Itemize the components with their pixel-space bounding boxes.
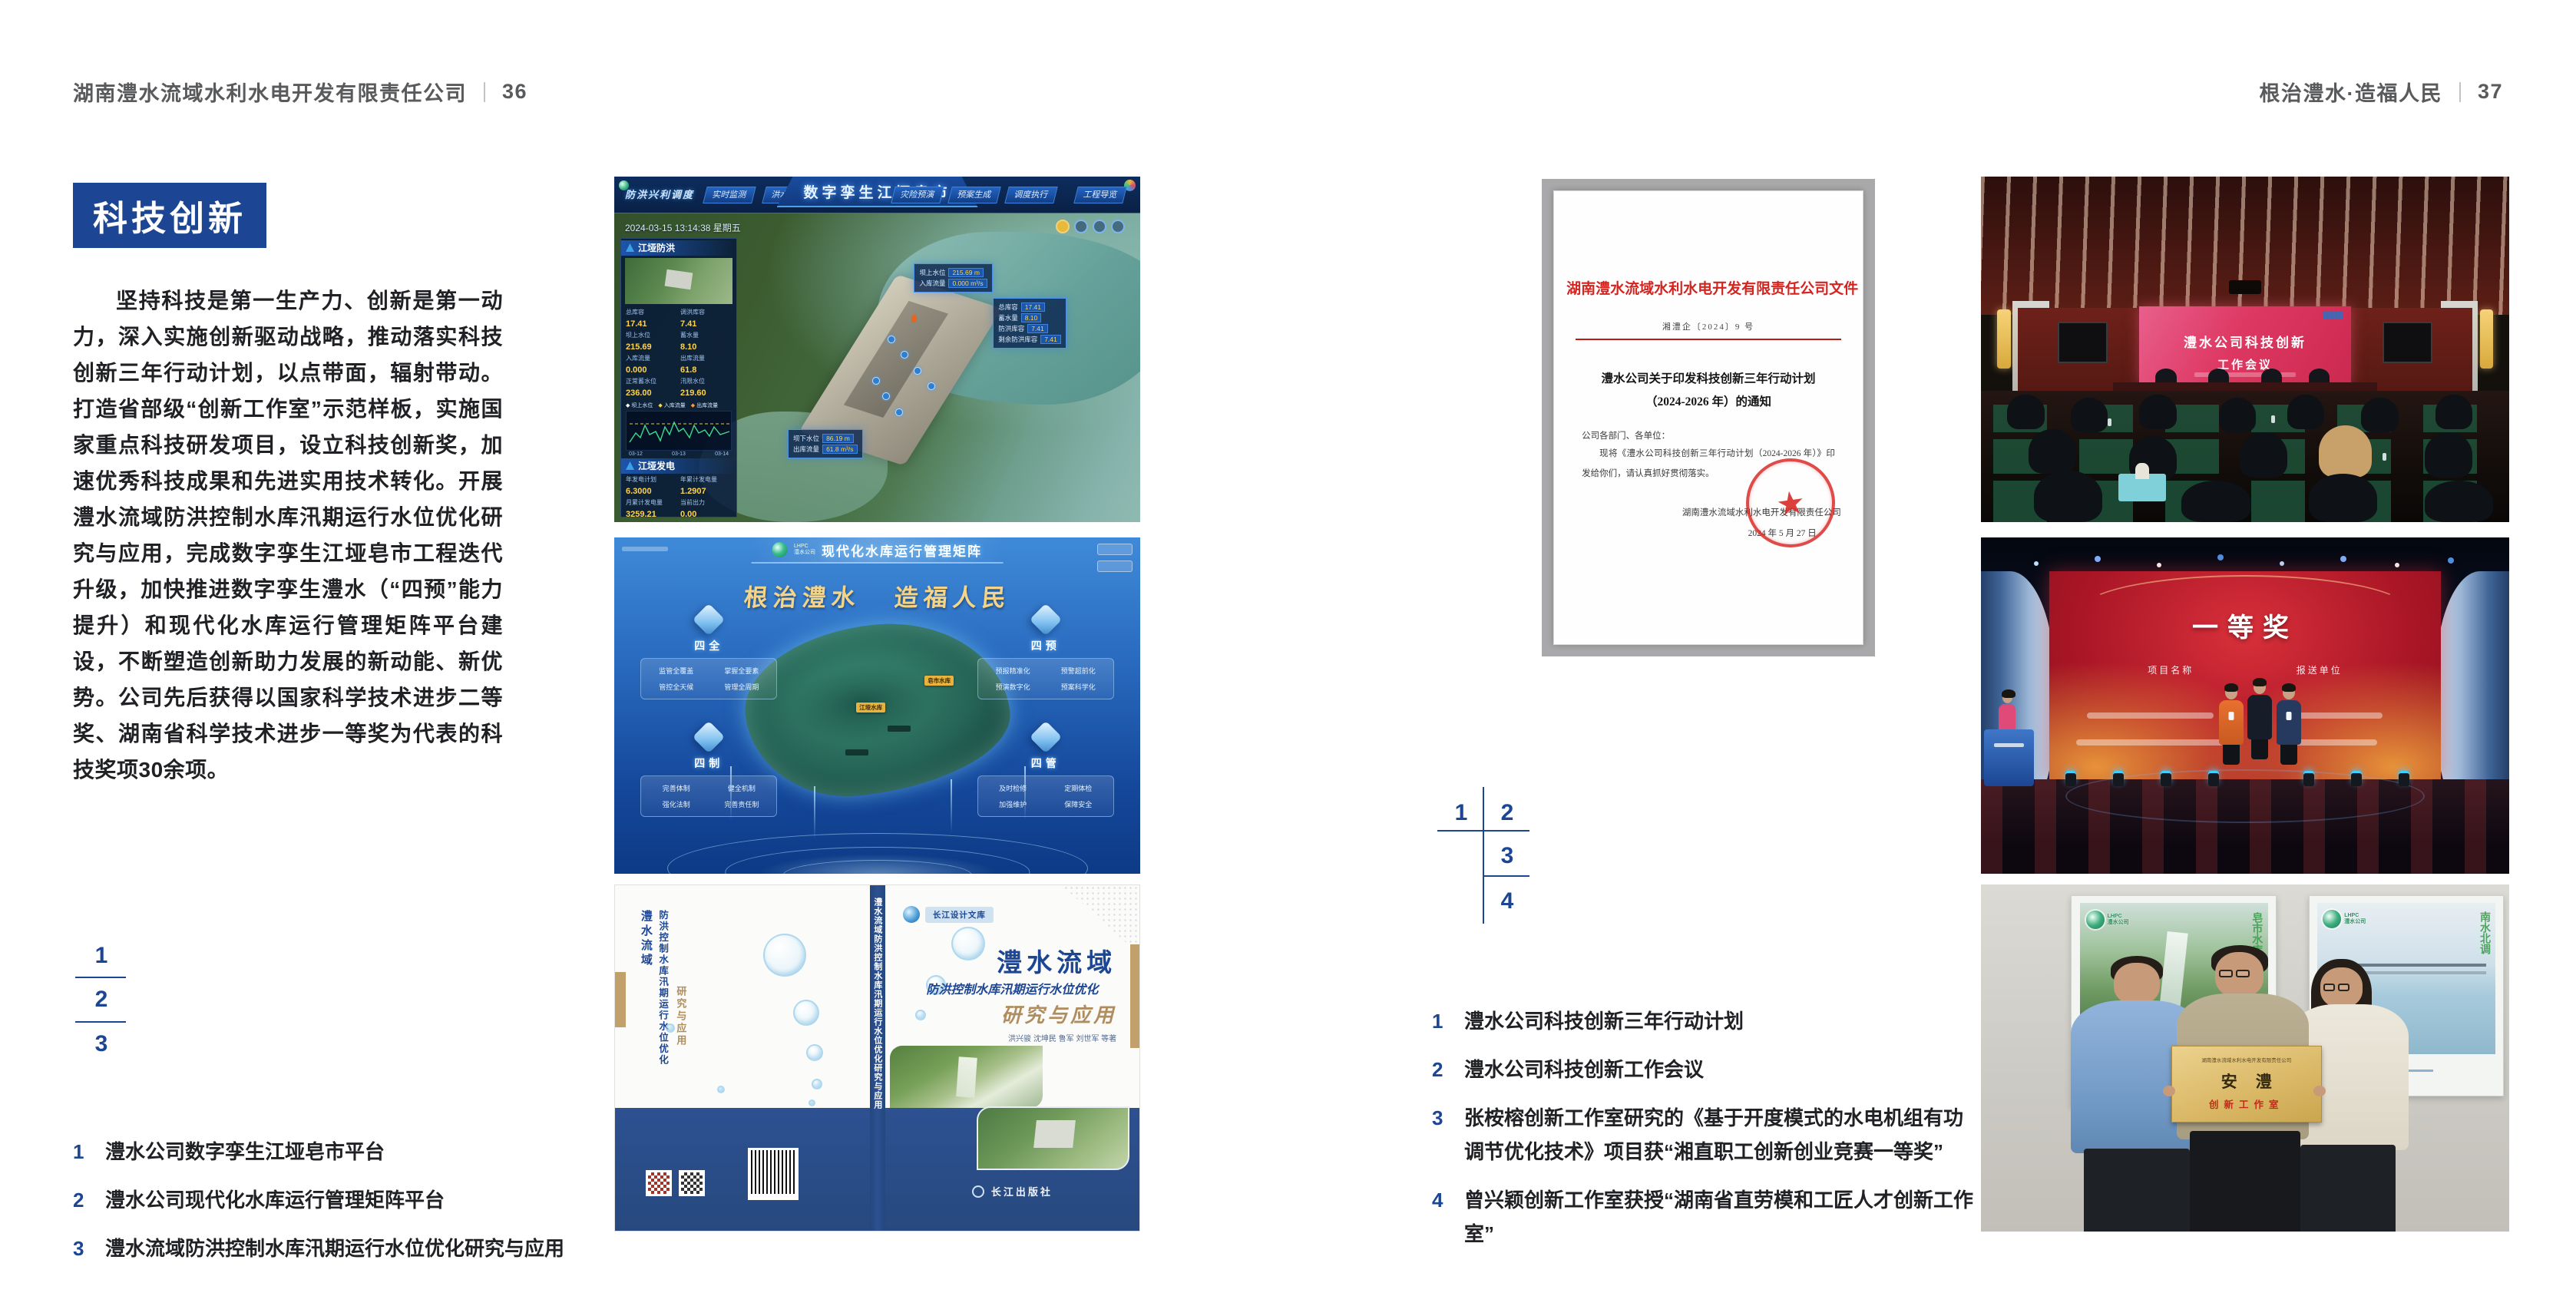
trophy-icon <box>2228 712 2234 720</box>
metric: 总库容17.41 <box>626 308 677 330</box>
metric: 当前出力0.00 <box>680 498 732 517</box>
caption-number: 2 <box>73 1183 90 1217</box>
barcode <box>748 1148 799 1200</box>
bubble-decoration <box>806 1044 823 1061</box>
back-tail-vertical: 研究与应用 <box>673 986 688 1047</box>
water-bottle <box>2108 418 2111 426</box>
metric: 出库流量61.8 <box>680 354 732 376</box>
tan-strip <box>1130 944 1139 1048</box>
plaque-subtitle: 创新工作室 <box>2172 1096 2321 1111</box>
blurred-text-bar <box>2293 739 2377 746</box>
audience-figure <box>2240 432 2287 478</box>
document-red-header: 湖南澧水流域水利水电开发有限责任公司文件 <box>1566 277 1850 298</box>
dashboard-datetime: 2024-03-15 13:14:38 星期五 <box>625 221 741 234</box>
caption-number: 1 <box>73 1135 90 1169</box>
dam-photo <box>890 1046 1043 1108</box>
trophy-icon <box>2287 712 2292 720</box>
metric: 蓄水量8.10 <box>680 331 732 353</box>
figure-award-ceremony: 一等奖 项目名称 报送单位 <box>1981 537 2509 874</box>
flood-panel-title: 江垭防洪 <box>621 240 736 256</box>
right-figure-index-3: 3 <box>1496 843 1518 869</box>
series-label: 长江设计文库 <box>925 907 994 923</box>
locate-icon <box>1093 220 1106 233</box>
magazine-spread: 湖南澧水流域水利水电开发有限责任公司 36 根治澧水·造福人民 37 科技创新 … <box>0 0 2576 1306</box>
floor-light <box>2208 771 2219 786</box>
company-logo-icon <box>772 542 788 557</box>
document-sheet: 湖南澧水流域水利水电开发有限责任公司文件 湘澧企〔2024〕9 号 澧水公司关于… <box>1553 190 1863 645</box>
host-podium <box>1984 729 2034 786</box>
gate-marker-icon <box>928 382 935 390</box>
screen-logo <box>2323 311 2343 319</box>
wall-lamp <box>1997 309 2011 369</box>
stage-spotlights <box>2034 561 2039 566</box>
screen-title-line1: 澧水公司科技创新 <box>2139 332 2350 351</box>
floor-light <box>2113 771 2124 786</box>
right-figure-index-4: 4 <box>1496 888 1518 914</box>
figure-digital-twin-dashboard: 防洪兴利调度 实时监测 洪水预报 防洪预警 数字孪生江垭皂市 灾险预演 预案生成… <box>614 177 1140 522</box>
right-caption-list: 1 澧水公司科技创新三年行动计划 2 澧水公司科技创新工作会议 3 张桉榕创新工… <box>1432 1004 1977 1265</box>
presenter-suit <box>2247 680 2272 759</box>
company-logo-icon <box>2086 911 2105 929</box>
metric: 年累计发电量1.2907 <box>680 475 732 498</box>
series-logo-row: 长江设计文库 <box>903 906 994 923</box>
floor-light <box>2399 771 2409 786</box>
section-title: 科技创新 <box>93 199 246 238</box>
power-metrics: 年发电计划6.3000 年累计发电量1.2907 月累计发电量3259.21 当… <box>621 474 736 517</box>
caption-row: 2 澧水公司科技创新工作会议 <box>1432 1053 1977 1086</box>
gate-marker-icon <box>872 377 880 385</box>
caption-number: 4 <box>1432 1183 1449 1217</box>
slogan: 根治澧水·造福人民 <box>2259 77 2442 107</box>
header-divider <box>484 82 485 102</box>
poster-calligraphy: 南水北调 <box>2476 911 2492 954</box>
header-button <box>1097 544 1133 555</box>
floor-light <box>2303 771 2314 786</box>
caption-row: 3 张桉榕创新工作室研究的《基于开度模式的水电机组有功调节优化技术》项目获“湘直… <box>1432 1101 1977 1169</box>
power-panel-title: 江垭发电 <box>621 458 736 474</box>
caption-row: 2 澧水公司现代化水库运行管理矩阵平台 <box>73 1183 564 1217</box>
quadrant-sizhi: 四制 完善体制 健全机制 强化法制 完善责任制 <box>640 726 777 817</box>
company-name: 湖南澧水流域水利水电开发有限责任公司 <box>73 77 467 107</box>
tissue-box <box>2118 474 2166 501</box>
figure-matrix-platform: LHPC 澧水公司 现代化水库运行管理矩阵 根治澧水 造福人民 皂市水库 江垭水… <box>614 537 1140 874</box>
right-figure-index-2: 2 <box>1496 800 1518 826</box>
book-authors: 洪兴骏 沈坤民 鲁军 刘世军 等著 <box>885 1032 1116 1043</box>
audience-figure <box>2139 395 2176 429</box>
dam-thumbnail <box>625 258 732 304</box>
metric: 正常蓄水位236.00 <box>626 377 677 399</box>
bubble-decoration <box>812 1079 822 1089</box>
audience-figure <box>2425 432 2472 478</box>
caption-row: 1 澧水公司科技创新三年行动计划 <box>1432 1004 1977 1038</box>
audience-figure <box>2034 471 2102 523</box>
quadrant-icon <box>693 603 725 636</box>
publisher-mark-icon <box>972 1185 984 1198</box>
audience-figure <box>2007 395 2044 429</box>
upstream-tooltip: 坝上水位215.69 m 入库流量0.000 m³/s <box>914 263 992 293</box>
red-rule <box>1576 339 1841 341</box>
awardee-orange <box>2219 686 2244 765</box>
tab-dispatch-execution: 调度执行 <box>1004 187 1057 203</box>
bubble-decoration <box>951 927 985 960</box>
index-divider <box>1437 830 1529 832</box>
figure-official-document: 湖南澧水流域水利水电开发有限责任公司文件 湘澧企〔2024〕9 号 澧水公司关于… <box>1542 179 1875 656</box>
quadrant-icon <box>1029 721 1061 753</box>
user-icon <box>1056 220 1070 233</box>
book-title-tail: 研究与应用 <box>885 1000 1116 1028</box>
caption-text: 澧水流域防洪控制水库汛期运行水位优化研究与应用 <box>105 1232 564 1265</box>
bubble-decoration <box>717 1086 725 1093</box>
caption-text: 张桉榕创新工作室研究的《基于开度模式的水电机组有功调节优化技术》项目获“湘直职工… <box>1464 1101 1977 1169</box>
right-figure-index-1: 1 <box>1450 800 1472 826</box>
datetime-placeholder <box>622 547 668 551</box>
audience-figure <box>2309 474 2377 522</box>
wall-tv <box>2383 322 2432 363</box>
plaque-org-line: 湖南澧水流域水利水电开发有限责任公司 <box>2172 1056 2321 1063</box>
person-head <box>2114 963 2159 1004</box>
blurred-text-bar <box>2076 739 2224 746</box>
section-title-box: 科技创新 <box>73 183 266 248</box>
caption-row: 3 澧水流域防洪控制水库汛期运行水位优化研究与应用 <box>73 1232 564 1265</box>
left-figure-index-3: 3 <box>91 1031 112 1057</box>
index-divider <box>75 1021 126 1023</box>
platform-header: LHPC 澧水公司 现代化水库运行管理矩阵 <box>751 537 1004 564</box>
left-page-header: 湖南澧水流域水利水电开发有限责任公司 36 <box>73 77 527 107</box>
glasses-icon <box>2219 970 2250 977</box>
audience-figure <box>2319 425 2372 478</box>
ceiling <box>1981 177 2509 315</box>
book-front-cover: 长江设计文库 澧水流域 防洪控制水库汛期运行水位优化 研究与应用 洪兴骏 沈坤民… <box>885 885 1139 1231</box>
header-divider <box>2459 82 2461 102</box>
book-title: 澧水流域 <box>997 942 1116 979</box>
audience-figure <box>2425 481 2493 522</box>
document-salutation: 公司各部门、各单位： <box>1582 429 1670 441</box>
wall-lamp <box>2480 309 2494 369</box>
qr-code <box>679 1170 705 1196</box>
innovation-studio-plaque: 湖南澧水流域水利水电开发有限责任公司 安澧 创新工作室 <box>2171 1046 2322 1122</box>
qr-code <box>646 1170 672 1196</box>
water-bottle <box>2271 415 2275 423</box>
flood-metrics: 总库容17.41 调洪库容7.41 坝上水位215.69 蓄水量8.10 入库流… <box>621 306 736 401</box>
dashboard-left-panel: 江垭防洪 总库容17.41 调洪库容7.41 坝上水位215.69 蓄水量8.1… <box>620 238 737 517</box>
book-back-cover: 澧水流域 防洪控制水库汛期运行水位优化 研究与应用 <box>615 885 870 1231</box>
audience-figure <box>2029 429 2076 474</box>
metric: 月累计发电量3259.21 <box>626 498 677 517</box>
header-button <box>1097 560 1133 572</box>
audience-figure <box>2435 395 2472 429</box>
screen-columns: 项目名称 报送单位 <box>2049 663 2440 676</box>
spine-title: 澧水流域防洪控制水库汛期运行水位优化研究与应用 <box>871 898 884 1109</box>
gate-marker-icon <box>895 408 903 416</box>
book-subtitle: 防洪控制水库汛期运行水位优化 <box>890 979 1134 997</box>
quadrant-icon <box>693 721 725 753</box>
audience-figure <box>2071 398 2108 432</box>
settings-icon <box>1111 220 1125 233</box>
back-title-vertical: 澧水流域 <box>638 910 654 968</box>
quadrant-siquan: 四全 监管全覆盖 掌握全要素 管控全天候 管理全周期 <box>640 608 777 699</box>
quadrant-siyu: 四预 预报精准化 预警超前化 预演数字化 预案科学化 <box>977 608 1114 699</box>
light-pillar <box>814 786 815 840</box>
back-subtitle-vertical: 防洪控制水库汛期运行水位优化 <box>656 910 670 1066</box>
audience-figure <box>2361 398 2398 432</box>
audience-figure <box>2287 395 2324 429</box>
water-level-mini-chart <box>626 411 732 451</box>
figure-book-cover: 澧水流域 防洪控制水库汛期运行水位优化 研究与应用 澧水流域防洪控制水库汛期运行… <box>614 884 1140 1232</box>
index-divider <box>75 977 126 978</box>
page-number-right: 37 <box>2478 80 2503 104</box>
audience-figure <box>2219 398 2256 432</box>
column-submitting-unit: 报送单位 <box>2297 663 2343 676</box>
caption-number: 3 <box>1432 1101 1449 1135</box>
wall-tv <box>2058 322 2108 363</box>
right-page-header: 根治澧水·造福人民 37 <box>2259 77 2503 107</box>
publisher-row: 长江出版社 <box>885 1184 1139 1199</box>
index-divider <box>1483 787 1484 924</box>
calligraphy-slogan: 根治澧水 造福人民 <box>742 578 1013 613</box>
quadrant-icon <box>1029 603 1061 636</box>
caption-text: 澧水公司科技创新工作会议 <box>1464 1053 1704 1086</box>
figure-meeting-photo: 澧水公司科技创新 工作会议 <box>1981 177 2509 522</box>
left-figure-index-1: 1 <box>91 943 112 969</box>
person-pants <box>2190 1131 2300 1232</box>
map-tag-jiangya: 江垭水库 <box>856 703 885 713</box>
metric: 年发电计划6.3000 <box>626 475 677 498</box>
caption-text: 澧水公司现代化水库运行管理矩阵平台 <box>105 1183 445 1217</box>
bubble-decoration <box>809 1099 815 1106</box>
map-tag-zaoshi: 皂市水库 <box>924 676 954 686</box>
tab-risk-rehearsal: 灾险预演 <box>891 187 944 203</box>
person-pants <box>2300 1145 2396 1232</box>
caption-text: 澧水公司数字孪生江垭皂市平台 <box>105 1135 385 1169</box>
blurred-text-bar <box>2087 713 2214 719</box>
metric: 坝上水位215.69 <box>626 331 677 353</box>
figure-group-photo: LHPC 澧水公司 皂市水库 LHPC 澧水公司 南水北调 <box>1981 884 2509 1232</box>
projector <box>2229 280 2260 294</box>
caption-row: 4 曾兴颖创新工作室获授“湖南省直劳模和工匠人才创新工作室” <box>1432 1183 1977 1251</box>
index-divider <box>1483 875 1529 877</box>
awardee-navy <box>2277 686 2301 765</box>
floor-light <box>2161 771 2171 786</box>
page-number-left: 36 <box>502 80 527 104</box>
metric: 调洪库容7.41 <box>680 308 732 330</box>
light-pillar <box>951 779 952 833</box>
plaque-title: 安澧 <box>2172 1070 2321 1093</box>
company-logo-icon <box>2323 910 2341 928</box>
person-pants <box>2084 1149 2190 1232</box>
bubble-decoration <box>793 1000 819 1026</box>
capacity-tooltip: 总库容17.41 蓄水量8.10 防洪库容7.41 剩余防洪库容7.41 <box>993 298 1066 349</box>
metric: 入库流量0.000 <box>626 354 677 376</box>
led-screen: 一等奖 项目名称 报送单位 <box>2049 571 2440 780</box>
platform-title: 现代化水库运行管理矩阵 <box>822 541 982 560</box>
gate-marker-icon <box>914 367 921 375</box>
water-bottle <box>2383 453 2386 461</box>
downstream-tooltip: 坝下水位86.19 m 出库流量61.8 m³/s <box>788 429 862 458</box>
chart-x-axis: 03-12 03-13 03-14 <box>621 451 736 457</box>
metric: 汛限水位219.60 <box>680 377 732 399</box>
caption-number: 1 <box>1432 1004 1449 1038</box>
layers-icon <box>1074 220 1088 233</box>
tab-realtime-monitor: 实时监测 <box>703 187 756 203</box>
caption-text: 曾兴颖创新工作室获授“湖南省直劳模和工匠人才创新工作室” <box>1464 1183 1977 1251</box>
dashboard-top-bar: 防洪兴利调度 实时监测 洪水预报 防洪预警 数字孪生江垭皂市 灾险预演 预案生成… <box>614 177 1140 213</box>
left-caption-list: 1 澧水公司数字孪生江垭皂市平台 2 澧水公司现代化水库运行管理矩阵平台 3 澧… <box>73 1135 564 1280</box>
person-marker-icon <box>911 315 917 322</box>
chart-legend: 坝上水位 入库流量 出库流量 <box>621 401 736 410</box>
book-spine: 澧水流域防洪控制水库汛期运行水位优化研究与应用 <box>870 885 885 1231</box>
document-title: 澧水公司关于印发科技创新三年行动计划 （2024-2026 年）的通知 <box>1576 368 1841 413</box>
star-icon <box>1774 482 1807 524</box>
floor-light <box>2351 771 2362 786</box>
company-logo-text: LHPC 澧水公司 <box>794 544 815 556</box>
tab-plan-generation: 预案生成 <box>947 187 1000 203</box>
caption-number: 2 <box>1432 1053 1449 1086</box>
column-project-name: 项目名称 <box>2148 663 2194 676</box>
screen-swirl <box>2081 575 2409 646</box>
tab-project-tour: 工程导览 <box>1073 187 1126 203</box>
quadrant-siguan: 四管 及时检修 定期体检 加强维护 保障安全 <box>977 726 1114 817</box>
glasses-icon <box>2323 984 2349 991</box>
audience-figure <box>2181 481 2250 522</box>
caption-row: 1 澧水公司数字孪生江垭皂市平台 <box>73 1135 564 1169</box>
section-body: 坚持科技是第一生产力、创新是第一动力，深入实施创新驱动战略，推动落实科技创新三年… <box>73 283 503 788</box>
publisher-logo-icon <box>903 906 920 923</box>
mode-label: 防洪兴利调度 <box>625 187 694 201</box>
ripple-ring <box>667 833 1088 874</box>
tan-strip <box>615 972 626 1027</box>
document-number: 湘澧企〔2024〕9 号 <box>1554 320 1863 332</box>
caption-text: 澧水公司科技创新三年行动计划 <box>1464 1004 1744 1038</box>
left-figure-index-2: 2 <box>91 987 112 1013</box>
bubble-decoration <box>763 934 806 977</box>
blurred-text-bar <box>2287 713 2383 719</box>
dam-photo-small <box>977 1106 1129 1170</box>
map-tag-small <box>845 749 868 755</box>
caption-number: 3 <box>73 1232 90 1265</box>
map-tag-small <box>888 726 911 732</box>
floor-light <box>2065 771 2076 786</box>
publisher-name: 长江出版社 <box>991 1184 1053 1199</box>
